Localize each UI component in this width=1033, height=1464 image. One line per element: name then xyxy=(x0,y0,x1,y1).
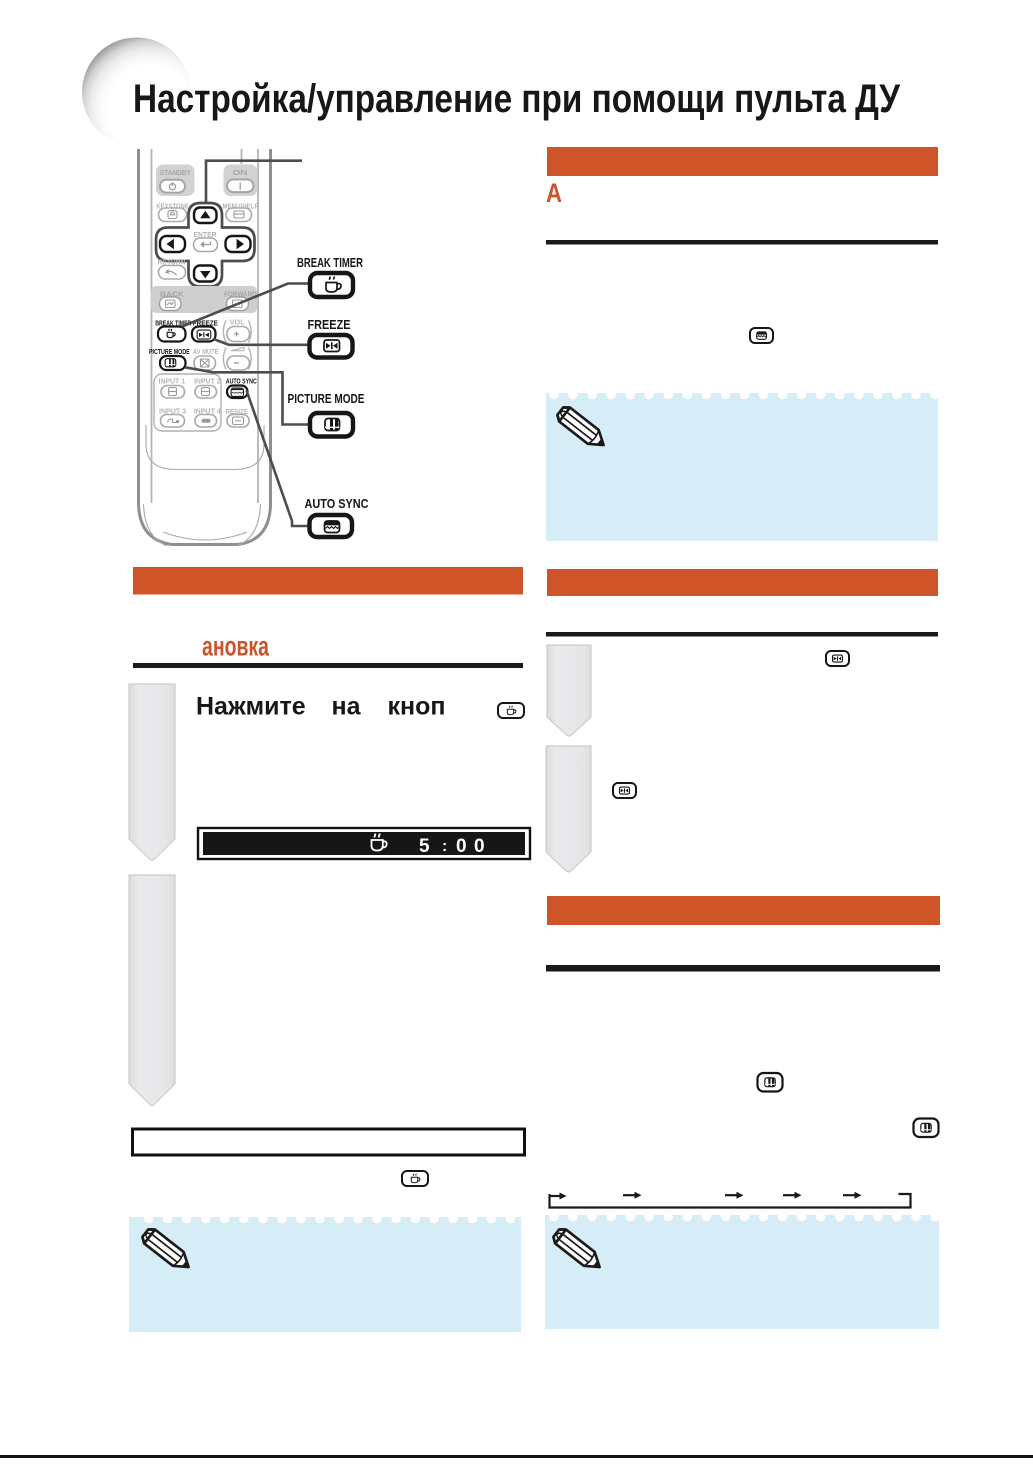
svg-text::: : xyxy=(442,838,447,855)
svg-text:INPUT 2: INPUT 2 xyxy=(194,376,221,385)
svg-text:А: А xyxy=(546,178,562,208)
svg-text:STANDBY: STANDBY xyxy=(160,168,191,177)
svg-text:на: на xyxy=(332,693,362,721)
svg-text:VOL: VOL xyxy=(230,318,246,327)
svg-text:BREAK TIMER: BREAK TIMER xyxy=(297,256,363,270)
svg-text:кноп: кноп xyxy=(388,693,446,721)
svg-text:5: 5 xyxy=(419,836,430,857)
svg-text:AUTO SYNC: AUTO SYNC xyxy=(226,376,257,385)
svg-text:PICTURE MODE: PICTURE MODE xyxy=(288,392,365,406)
svg-text:PICTURE MODE: PICTURE MODE xyxy=(149,347,190,356)
svg-text:0: 0 xyxy=(456,836,467,857)
svg-text:ановка: ановка xyxy=(202,631,269,662)
svg-text:0: 0 xyxy=(474,836,485,857)
svg-text:AUTO SYNC: AUTO SYNC xyxy=(305,497,369,511)
svg-text:Настройка/управление при помощ: Настройка/управление при помощи пульта Д… xyxy=(133,77,901,121)
svg-text:AV MUTE: AV MUTE xyxy=(193,347,219,356)
svg-text:ON: ON xyxy=(233,168,248,177)
svg-text:INPUT 1: INPUT 1 xyxy=(159,376,186,385)
svg-text:Нажмите: Нажмите xyxy=(196,693,306,721)
svg-text:FREEZE: FREEZE xyxy=(308,318,351,332)
